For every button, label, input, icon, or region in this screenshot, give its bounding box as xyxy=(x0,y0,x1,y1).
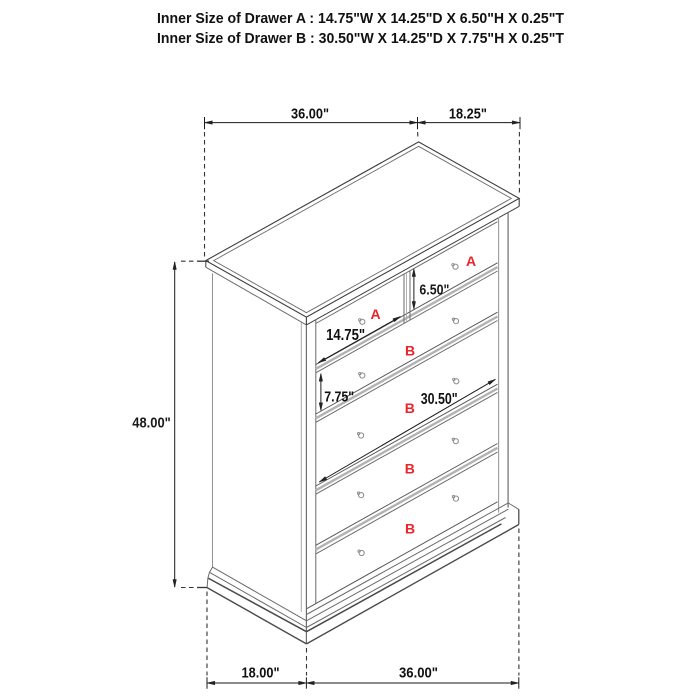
svg-text:30.50": 30.50" xyxy=(421,391,458,408)
svg-text:36.00": 36.00" xyxy=(291,106,329,122)
svg-text:14.75": 14.75" xyxy=(326,327,365,344)
svg-text:Inner Size of Drawer A : 14.75: Inner Size of Drawer A : 14.75"W X 14.25… xyxy=(157,11,564,27)
svg-text:B: B xyxy=(405,521,415,537)
svg-text:36.00": 36.00" xyxy=(399,666,438,682)
svg-text:A: A xyxy=(370,306,380,322)
svg-text:48.00": 48.00" xyxy=(132,416,171,432)
svg-text:6.50": 6.50" xyxy=(419,281,449,298)
svg-text:Inner Size of Drawer B : 30.50: Inner Size of Drawer B : 30.50"W X 14.25… xyxy=(157,31,564,47)
svg-text:B: B xyxy=(405,461,415,477)
svg-text:B: B xyxy=(405,343,415,359)
svg-text:18.00": 18.00" xyxy=(242,666,280,682)
svg-text:B: B xyxy=(405,400,415,416)
svg-text:18.25": 18.25" xyxy=(449,106,487,122)
svg-text:A: A xyxy=(466,253,476,269)
svg-text:7.75": 7.75" xyxy=(324,388,354,405)
